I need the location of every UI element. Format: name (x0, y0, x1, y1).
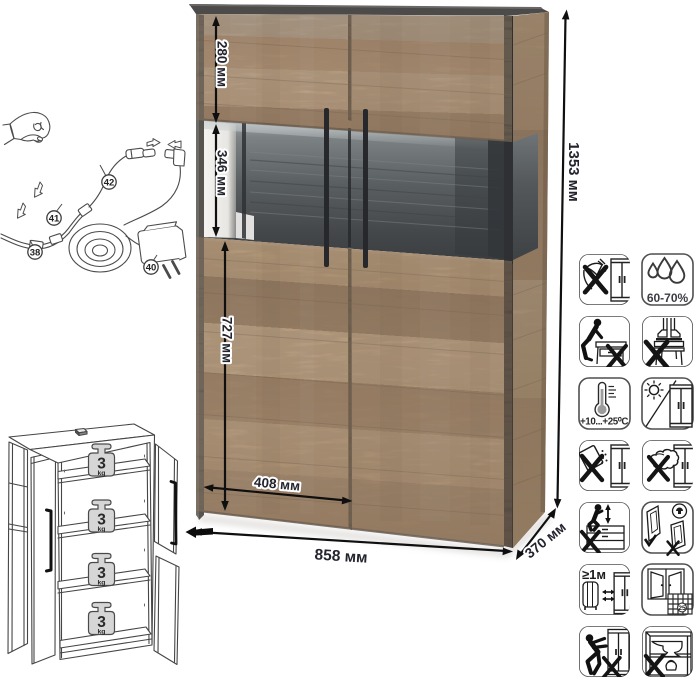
svg-text:41: 41 (49, 214, 60, 225)
svg-text:346 мм: 346 мм (214, 150, 229, 196)
svg-text:42: 42 (104, 178, 115, 189)
svg-text:38: 38 (30, 248, 41, 259)
svg-text:kg: kg (98, 629, 106, 636)
svg-text:280 мм: 280 мм (214, 41, 229, 87)
svg-text:858 мм: 858 мм (314, 546, 368, 566)
svg-text:kg: kg (98, 580, 106, 587)
svg-text:kg: kg (98, 526, 106, 533)
svg-text:+10...+25⁰C: +10...+25⁰C (580, 417, 628, 428)
svg-text:kg: kg (98, 470, 106, 477)
svg-text:≥1м: ≥1м (582, 567, 606, 582)
svg-text:1353 мм: 1353 мм (565, 142, 582, 202)
svg-text:40: 40 (146, 263, 157, 274)
svg-text:25: 25 (678, 605, 686, 612)
svg-text:727 мм: 727 мм (219, 317, 234, 363)
svg-text:60-70%: 60-70% (647, 291, 689, 305)
